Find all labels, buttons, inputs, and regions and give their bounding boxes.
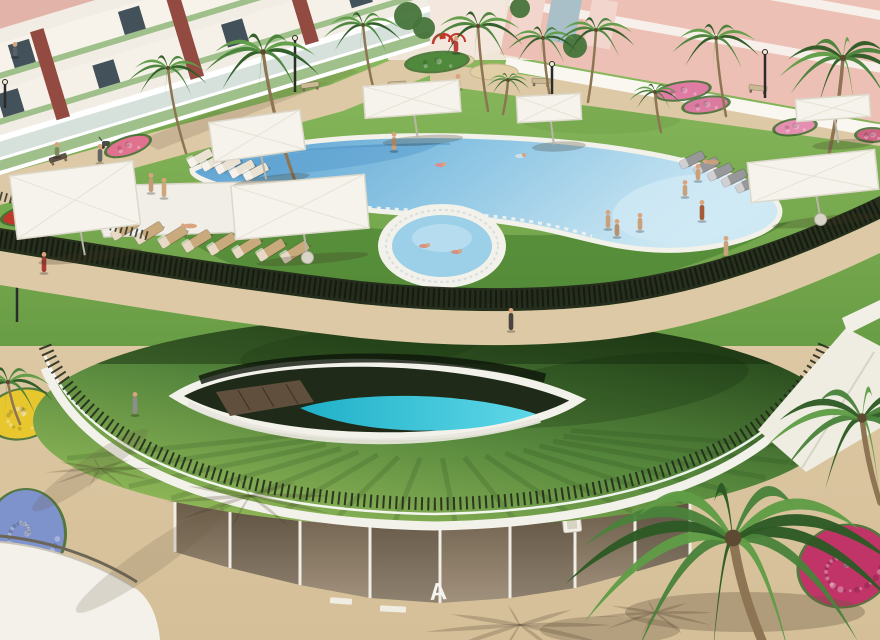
scene-canvas: A [0,0,880,640]
render-image: A [0,0,880,640]
tree [413,17,435,39]
tree [563,34,587,58]
kids-pool [378,204,506,288]
block-a-sign: A [429,578,448,606]
